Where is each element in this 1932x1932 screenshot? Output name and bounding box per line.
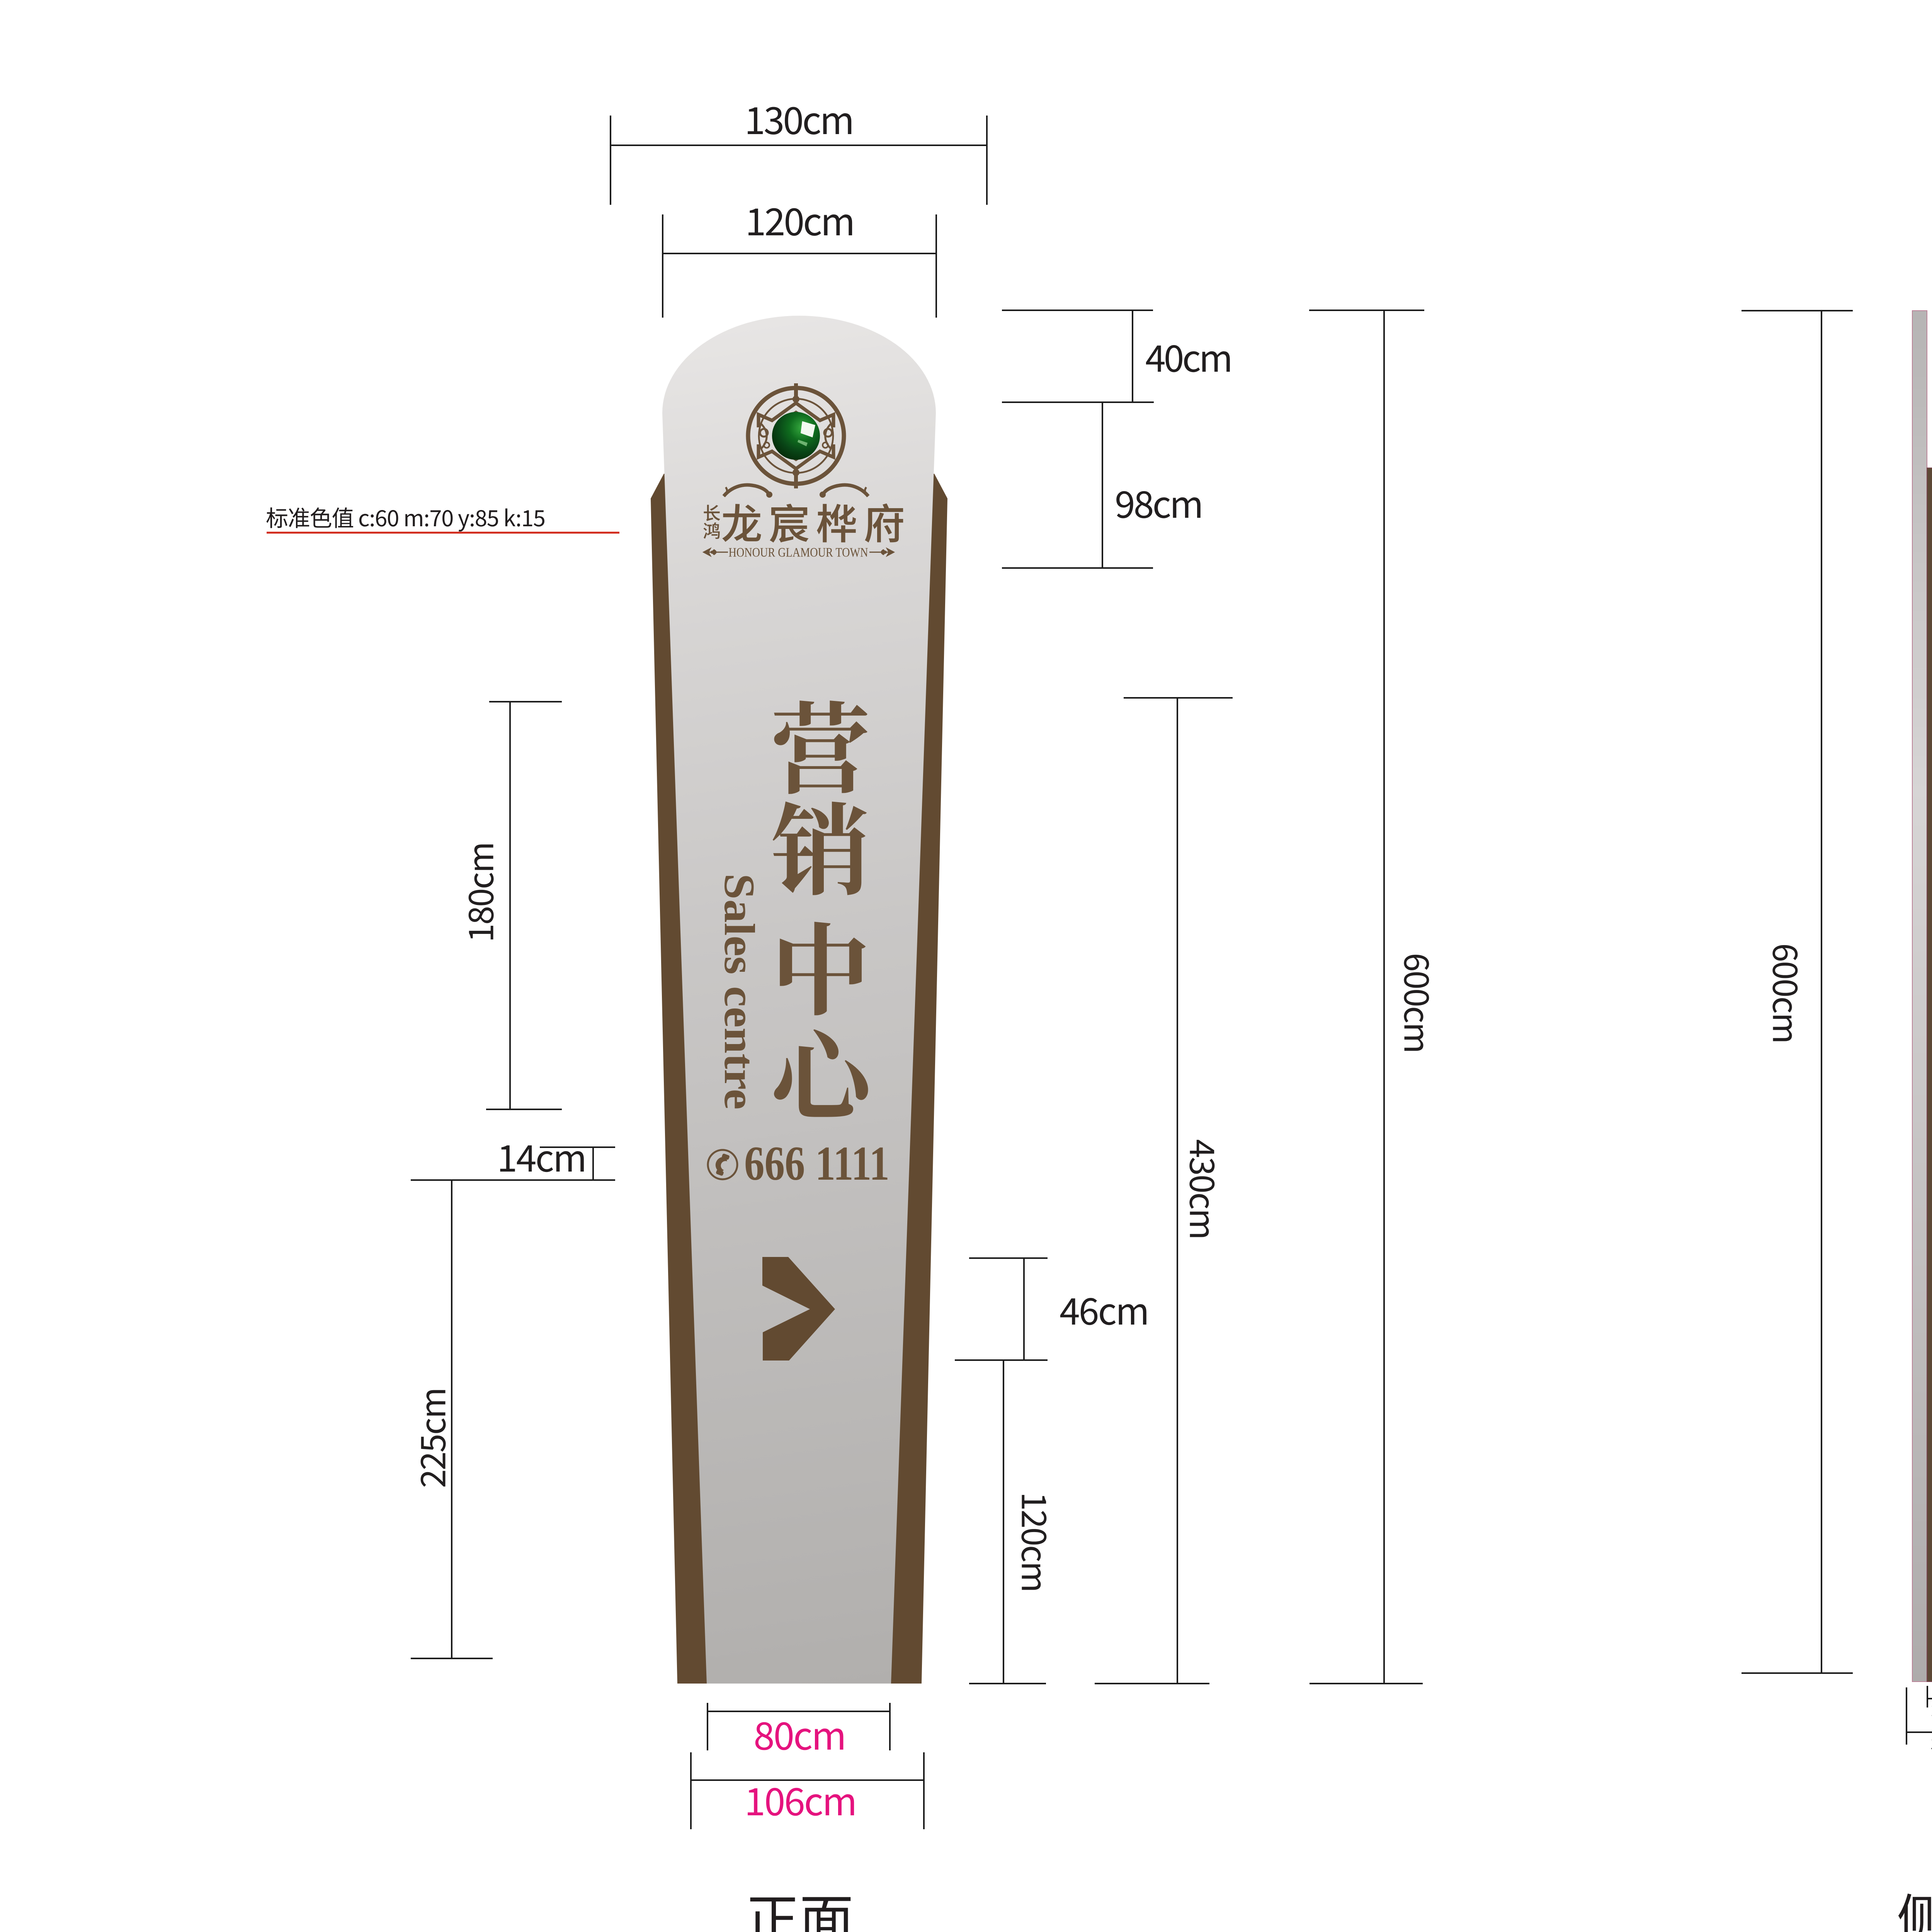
svg-text:Sales centre: Sales centre [715, 874, 763, 1110]
svg-text:225cm: 225cm [406, 1388, 456, 1488]
svg-text:600cm: 600cm [1395, 953, 1444, 1053]
svg-text:120cm: 120cm [745, 192, 854, 246]
svg-text:180cm: 180cm [454, 843, 503, 942]
svg-text:HONOUR GLAMOUR TOWN: HONOUR GLAMOUR TOWN [729, 546, 868, 560]
svg-text:鸿: 鸿 [703, 517, 721, 543]
svg-text:120cm: 120cm [1012, 1492, 1061, 1592]
svg-text:标准色值 c:60 m:70 y:85 k:15: 标准色值 c:60 m:70 y:85 k:15 [266, 500, 546, 533]
svg-text:130cm: 130cm [745, 90, 853, 145]
svg-text:14cm: 14cm [497, 1129, 586, 1182]
svg-text:46cm: 46cm [1060, 1282, 1148, 1335]
svg-text:106cm: 106cm [745, 1772, 856, 1827]
svg-text:侧面: 侧面 [1897, 1877, 1932, 1932]
svg-text:40cm: 40cm [1145, 330, 1231, 383]
svg-text:心: 心 [771, 998, 871, 1141]
svg-text:666 1111: 666 1111 [744, 1137, 889, 1190]
svg-text:600cm: 600cm [1763, 943, 1812, 1043]
svg-text:430cm: 430cm [1180, 1139, 1229, 1239]
svg-text:80cm: 80cm [753, 1706, 845, 1761]
svg-text:龙宸桦府: 龙宸桦府 [721, 491, 911, 551]
svg-text:98cm: 98cm [1115, 476, 1202, 529]
svg-text:正面: 正面 [745, 1877, 854, 1932]
